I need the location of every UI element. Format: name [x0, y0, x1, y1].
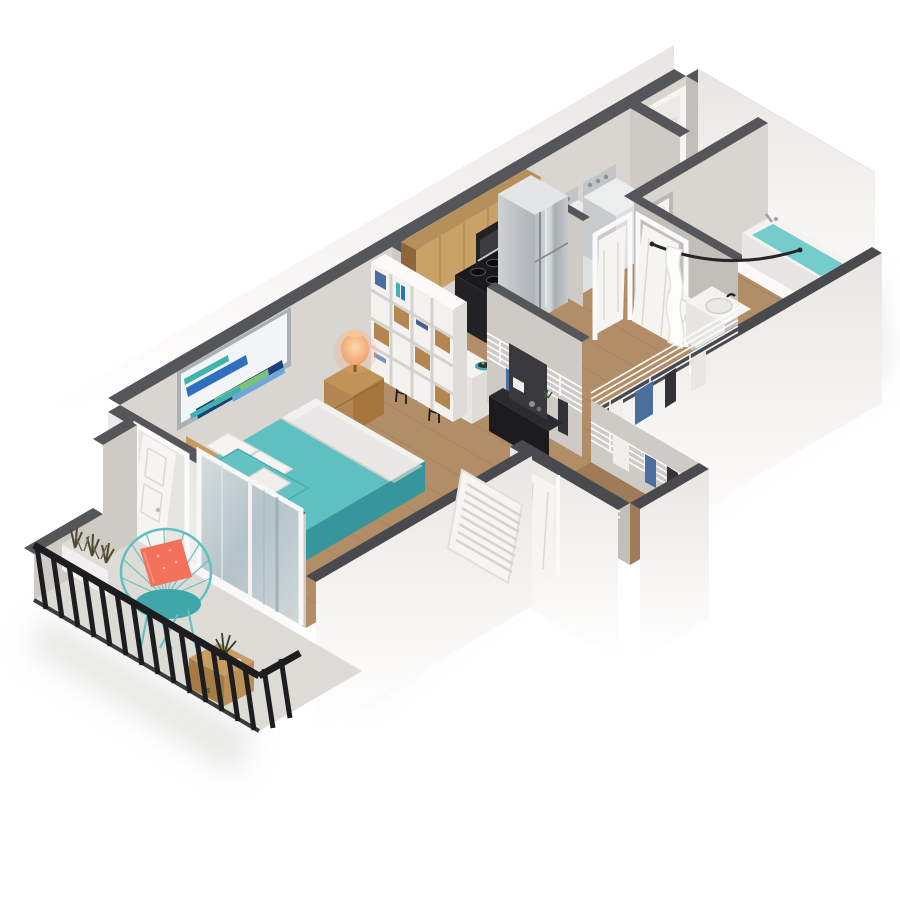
- isometric-floor-plan: [0, 0, 900, 900]
- table-lamp: [333, 330, 377, 374]
- balcony-tall-wall: [103, 425, 137, 560]
- floor-plan-stage: [0, 0, 900, 900]
- chair-seat: [135, 589, 201, 619]
- shelf-side: [453, 302, 467, 422]
- door-knob: [156, 508, 160, 512]
